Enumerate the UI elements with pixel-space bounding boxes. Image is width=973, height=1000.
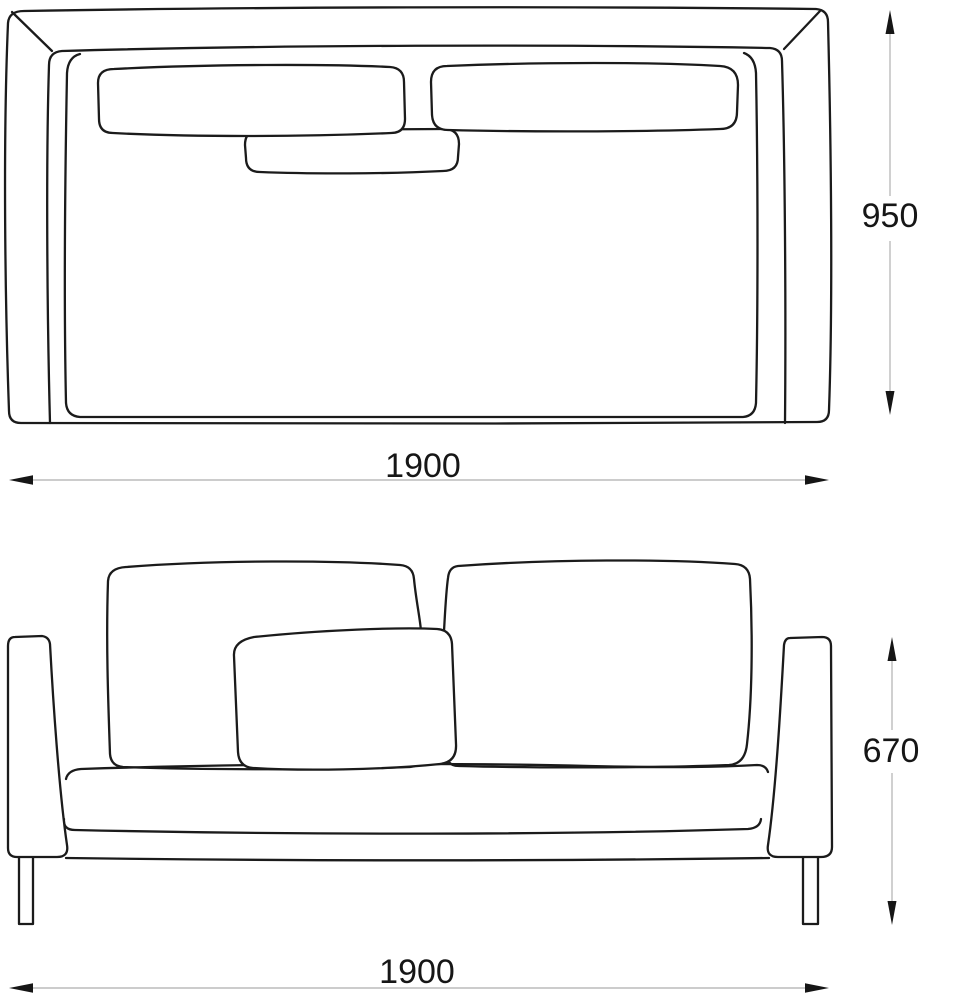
dim-width-top-label: 1900: [385, 447, 461, 485]
left-leg: [19, 858, 33, 924]
back-cushion-left-top-view: [98, 65, 405, 136]
arrowhead-left-icon: [9, 983, 33, 993]
arrowhead-up-icon: [886, 10, 895, 34]
arrowhead-down-icon: [886, 391, 895, 415]
arrowhead-up-icon: [888, 637, 897, 661]
dimension-height: 670: [863, 637, 920, 925]
back-cushion-right-top-view: [431, 63, 738, 131]
dimension-width-bottom: 1900: [9, 953, 829, 993]
top-view: [5, 7, 831, 423]
arrowhead-down-icon: [888, 901, 897, 925]
base-bottom-edge: [66, 858, 769, 860]
left-armrest: [8, 636, 67, 857]
dimension-depth: 950: [862, 10, 919, 415]
dim-depth-label: 950: [862, 197, 919, 235]
dimension-width-top: 1900: [9, 447, 829, 485]
right-leg: [803, 858, 818, 924]
seat-base-crease: [64, 819, 761, 834]
arrowhead-right-icon: [805, 983, 829, 993]
right-armrest: [768, 637, 832, 857]
sofa-dimension-drawing: 950 1900 670 1900: [0, 0, 973, 1000]
back-cushion-right-front-view: [444, 560, 752, 767]
arrowhead-right-icon: [805, 475, 829, 485]
arrowhead-left-icon: [9, 475, 33, 485]
front-view: [8, 560, 832, 924]
dim-width-bottom-label: 1900: [379, 953, 455, 991]
drawing-canvas: 950 1900 670 1900: [0, 0, 973, 1000]
lumbar-cushion-front-view: [234, 628, 456, 769]
dim-height-label: 670: [863, 732, 920, 770]
